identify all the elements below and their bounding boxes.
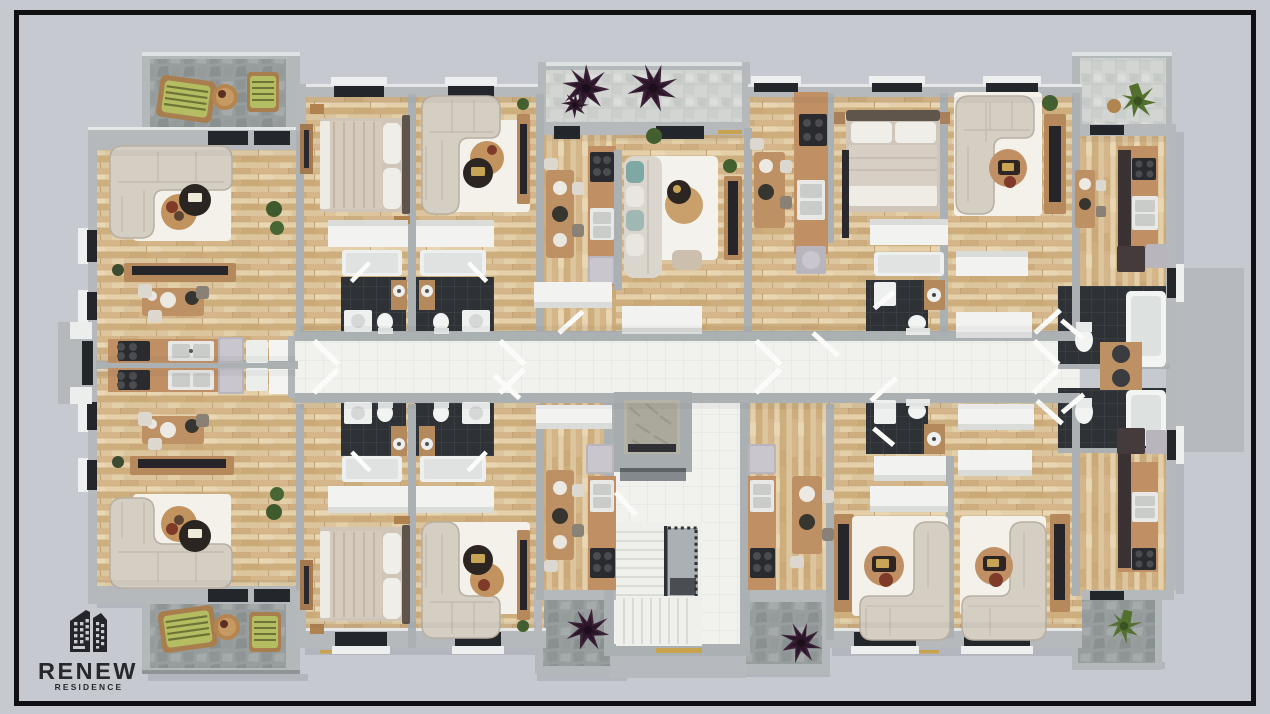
svg-text:RESIDENCE: RESIDENCE — [55, 682, 124, 692]
svg-text:RENEW: RENEW — [38, 658, 138, 684]
